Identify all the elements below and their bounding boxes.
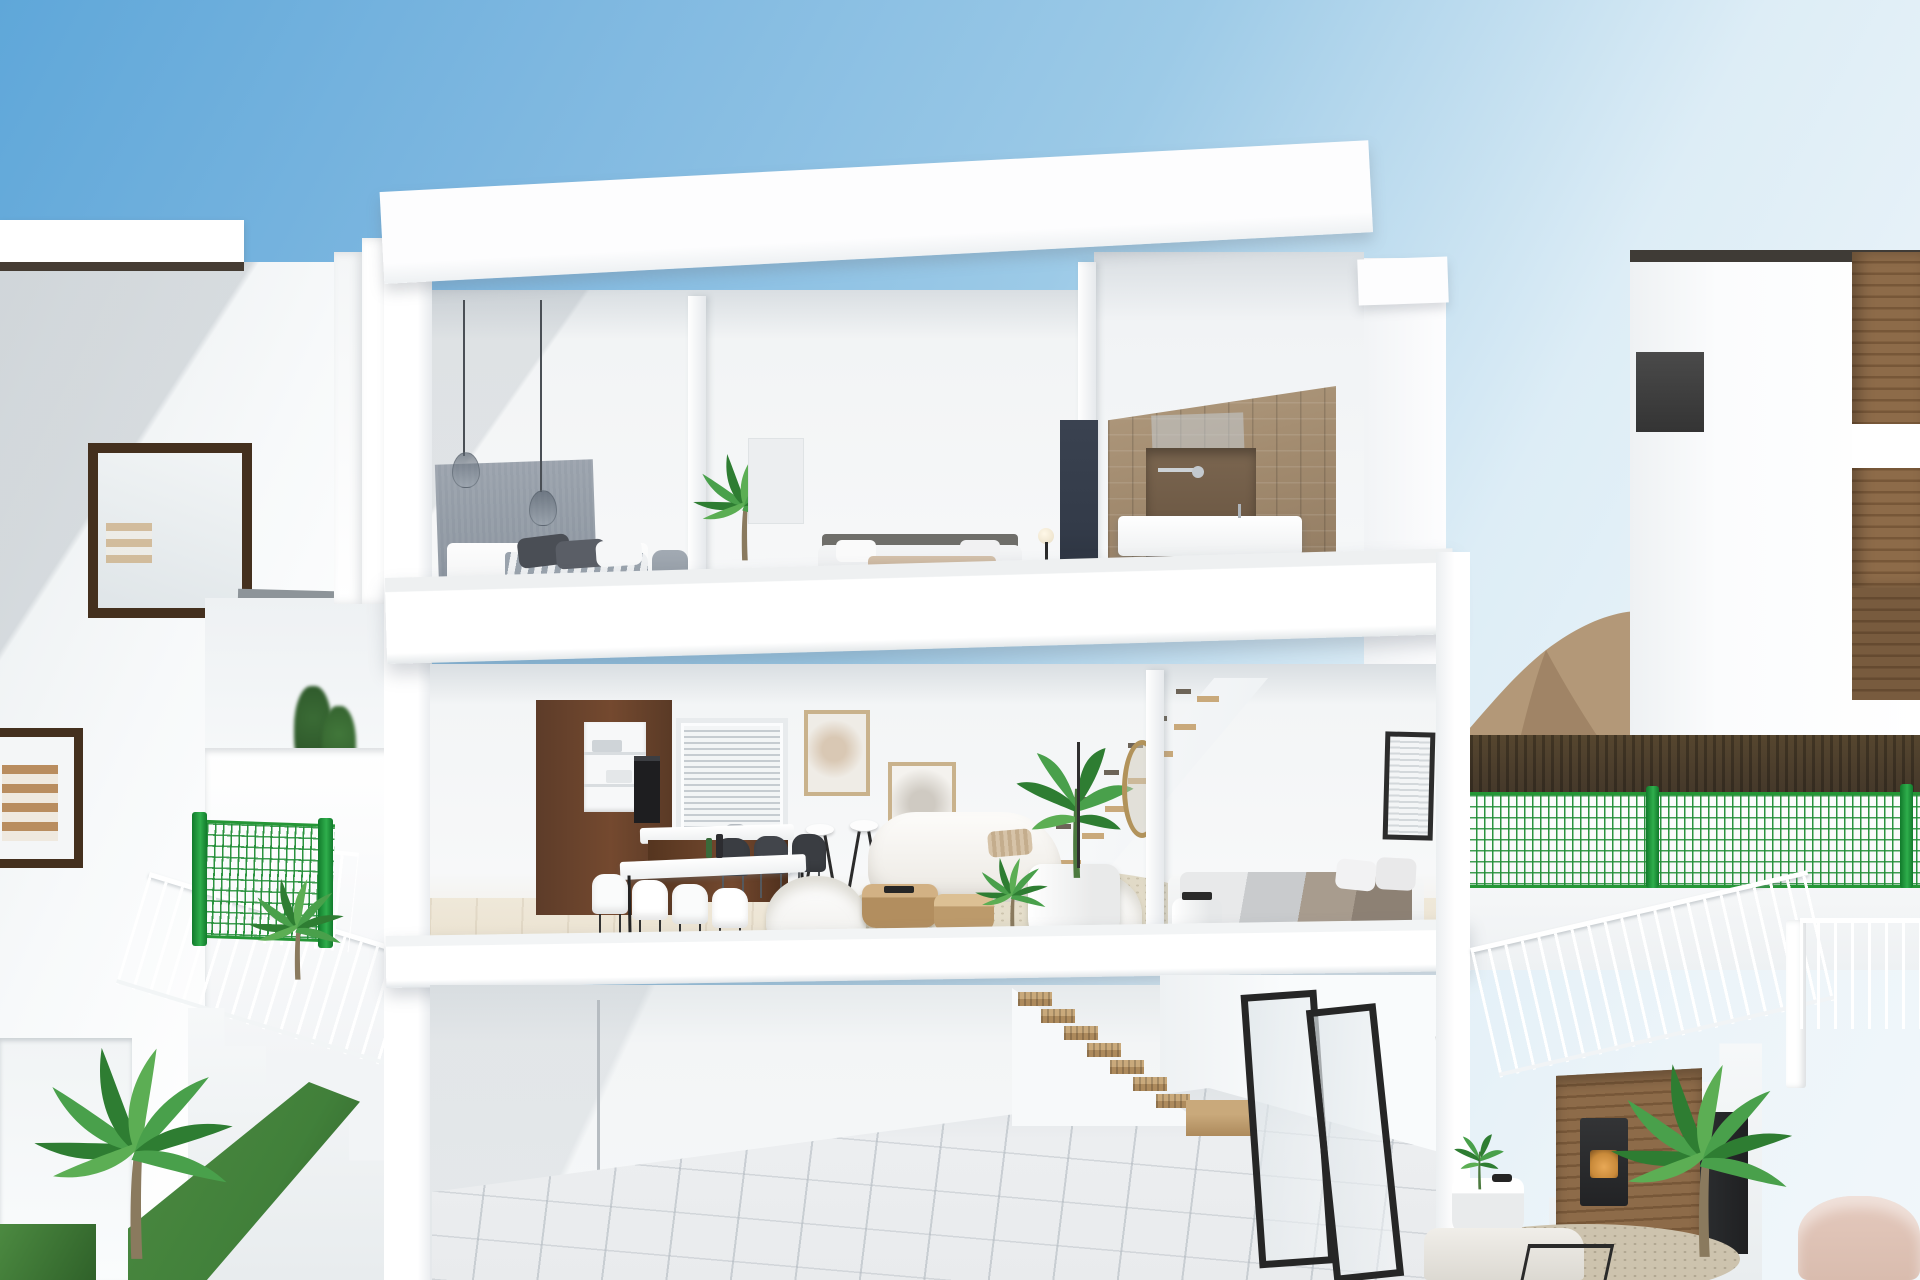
stair-landing-block [1186, 1100, 1254, 1136]
wall-art-flowers [804, 710, 870, 796]
pendant-lamp-cord [540, 300, 542, 492]
fence-post [192, 812, 207, 946]
window-interior-stair-glimpse [2, 765, 58, 841]
palm-plant-large [20, 1030, 250, 1280]
bed-pillow-white [595, 538, 643, 567]
table-tray [884, 886, 914, 893]
timber-stair-tread [1087, 1043, 1121, 1057]
small-window-blinded [1383, 731, 1436, 840]
bed3-pillow [1375, 857, 1417, 891]
render-viewport [0, 0, 1920, 1280]
fence-post [1646, 786, 1659, 888]
timber-stair-tread [1064, 1026, 1098, 1040]
stair-tread [1174, 724, 1196, 730]
built-in-oven [634, 756, 660, 823]
basement-pipe [597, 1000, 600, 1180]
shelf-objects [606, 770, 632, 783]
left-neighbour-roof-edge [0, 262, 244, 271]
stairwell-window-left-building [0, 728, 83, 868]
blush-armchair [1798, 1196, 1920, 1280]
bed3-pillow [1335, 858, 1378, 892]
palm-plant-medium [242, 846, 352, 1014]
parapet-step [334, 252, 364, 604]
coffee-table-round [862, 884, 938, 928]
left-neighbour-parapet [0, 220, 244, 262]
timber-cladding-tower [1852, 252, 1920, 588]
timber-stair-tread [1110, 1060, 1144, 1074]
pendant-lamp [452, 452, 480, 488]
folded-towels [1182, 892, 1212, 900]
wall-divider [1146, 670, 1164, 954]
stair-landing-rail [1800, 918, 1920, 1036]
table-plant-sprig [1452, 1134, 1506, 1194]
palm-plant-right [1598, 1042, 1808, 1280]
vanity-tap [1238, 504, 1241, 518]
timber-stair-tread [1156, 1094, 1190, 1108]
dining-chair-white [592, 874, 628, 940]
pendant-lamp-cord [463, 300, 465, 456]
wall-art-faint [748, 438, 804, 524]
window-interior-stair-glimpse [106, 523, 152, 563]
upper-flight-tread-slot [1176, 689, 1191, 694]
hedge-line [1452, 735, 1920, 795]
cladding-white-band [1852, 424, 1920, 468]
table-bottle-green [706, 838, 712, 858]
chimney [1636, 352, 1704, 432]
timber-stair-tread [1133, 1077, 1167, 1091]
window-tall-left-building [88, 443, 252, 618]
table-bottle-dark [716, 834, 723, 858]
timber-cladding-lower [1852, 588, 1920, 700]
section-cut-pier-left [384, 236, 432, 1280]
timber-stair-tread [1018, 992, 1052, 1006]
pendant-lamp [529, 490, 557, 526]
stair-tread [1197, 696, 1219, 702]
fence-post [1900, 784, 1913, 888]
green-mesh-fence-right [1460, 792, 1920, 888]
roof-slab-right-wing [1357, 256, 1449, 305]
shower-head [1192, 466, 1204, 478]
shelf-objects [592, 740, 622, 752]
vanity-counter [1118, 516, 1302, 556]
timber-stair-tread [1041, 1009, 1075, 1023]
slim-floor-lamp-pole [1077, 742, 1080, 868]
